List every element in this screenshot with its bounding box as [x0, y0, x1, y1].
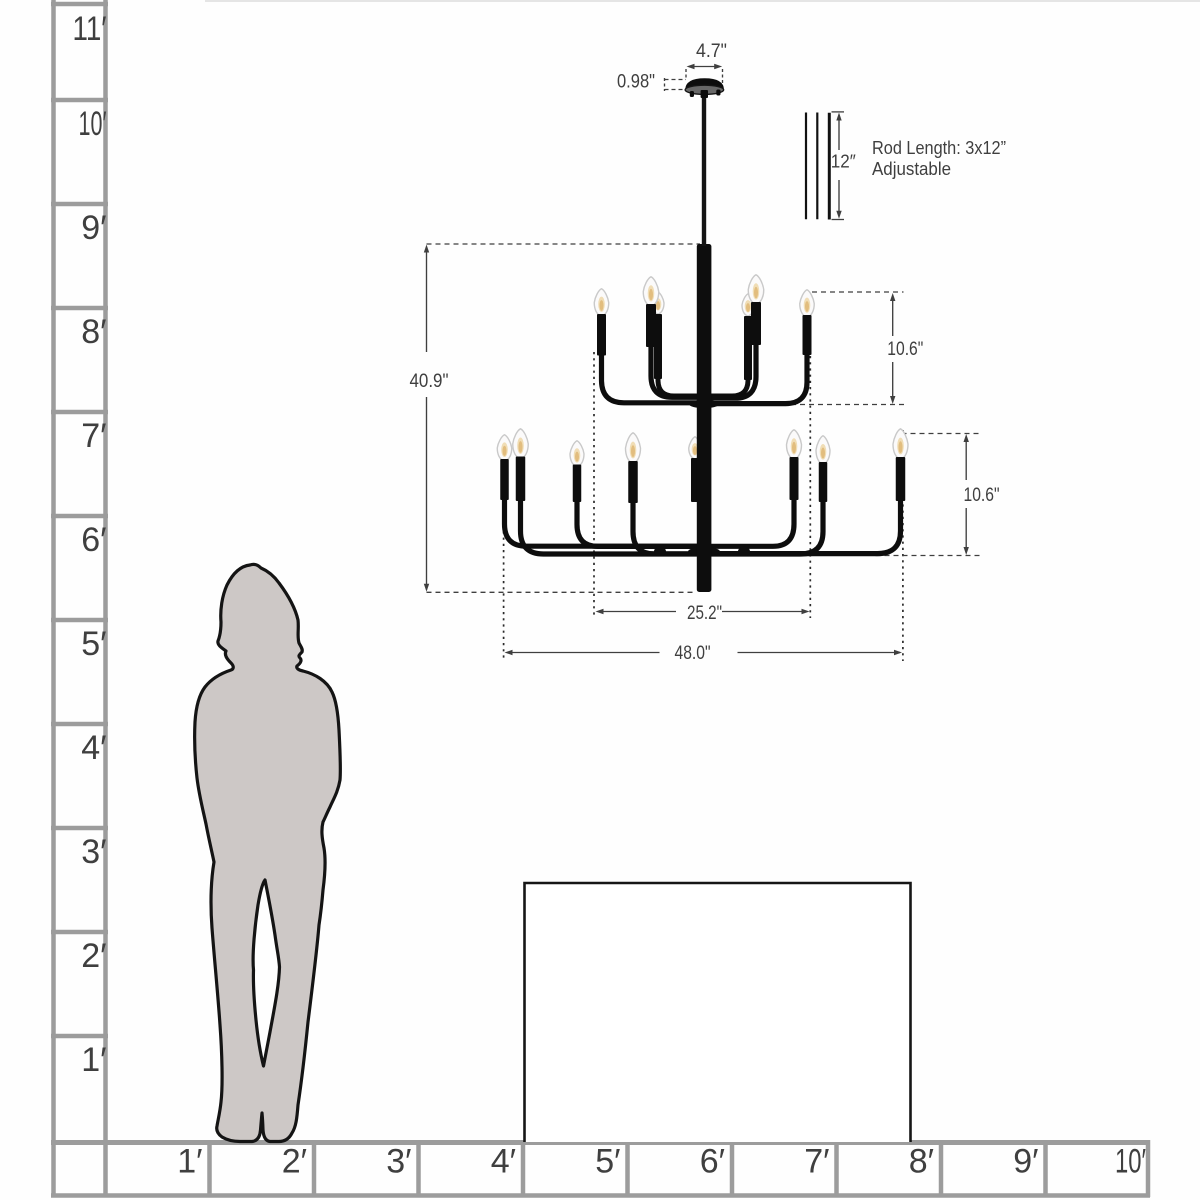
svg-text:7′: 7′	[81, 417, 106, 455]
svg-text:12″: 12″	[831, 152, 857, 172]
svg-text:0.98": 0.98"	[617, 72, 655, 93]
svg-text:4′: 4′	[491, 1143, 516, 1181]
svg-text:6′: 6′	[81, 521, 106, 559]
svg-text:1′: 1′	[177, 1143, 202, 1181]
svg-text:48.0": 48.0"	[675, 642, 711, 664]
svg-text:25.2": 25.2"	[687, 602, 722, 624]
svg-text:4′: 4′	[81, 729, 106, 767]
svg-text:3′: 3′	[81, 833, 106, 871]
svg-text:10.6": 10.6"	[887, 338, 923, 360]
svg-text:10.6": 10.6"	[964, 484, 1000, 506]
svg-text:2′: 2′	[282, 1143, 307, 1181]
svg-text:7′: 7′	[804, 1143, 829, 1181]
svg-text:Rod Length: 3x12”: Rod Length: 3x12”	[872, 138, 1006, 158]
svg-text:5′: 5′	[81, 625, 106, 663]
svg-text:3′: 3′	[386, 1143, 411, 1181]
svg-text:6′: 6′	[700, 1143, 725, 1181]
svg-text:8′: 8′	[81, 313, 106, 351]
svg-text:5′: 5′	[595, 1143, 620, 1181]
svg-text:9′: 9′	[1013, 1143, 1038, 1181]
svg-text:10′: 10′	[1115, 1143, 1146, 1181]
svg-text:1′: 1′	[81, 1041, 106, 1079]
svg-text:10′: 10′	[79, 105, 107, 143]
svg-text:2′: 2′	[81, 937, 106, 975]
svg-text:4.7": 4.7"	[696, 41, 727, 62]
svg-text:8′: 8′	[909, 1143, 934, 1181]
svg-text:9′: 9′	[81, 209, 106, 247]
svg-text:Adjustable: Adjustable	[872, 159, 951, 179]
svg-text:40.9": 40.9"	[410, 370, 449, 392]
svg-text:11′: 11′	[73, 10, 107, 48]
